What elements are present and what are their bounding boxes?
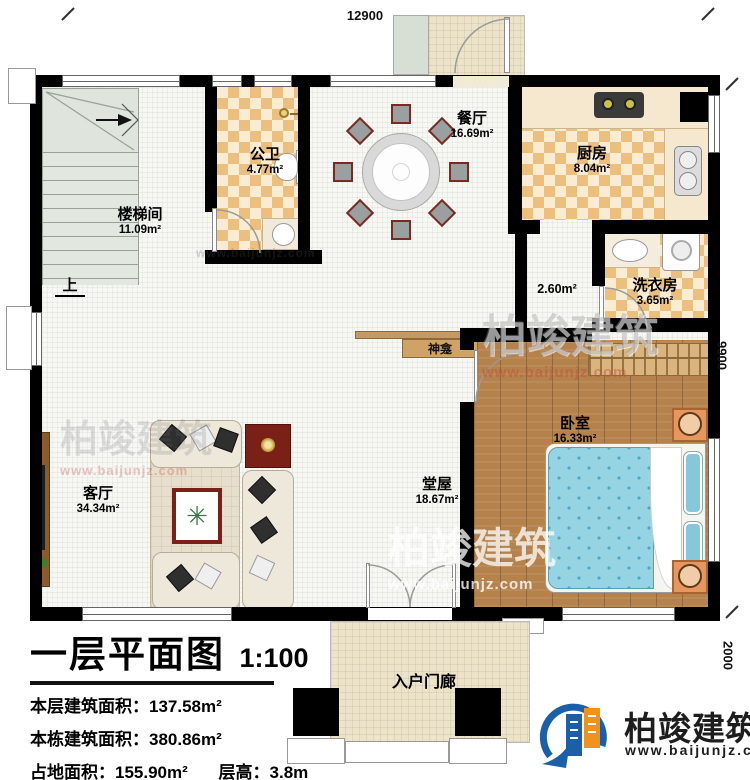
dining-chair-e: [449, 162, 469, 182]
stat-floor-area: 本层建筑面积：137.58m²: [30, 692, 309, 717]
page-title: 一层平面图: [30, 634, 225, 675]
porch-column-right: [455, 688, 501, 736]
floor-plan: ✳ 神龛: [0, 0, 750, 780]
window-top-dining-1: [254, 75, 292, 87]
coffee-table-plant: ✳: [183, 502, 211, 530]
title-underline: [30, 681, 274, 685]
laundry-basin: [612, 239, 648, 262]
wall-bedroom-left-2: [460, 402, 474, 614]
bath-door-leaf: [212, 208, 217, 252]
window-sill-left: [6, 306, 32, 370]
dimension-top: 12900: [330, 8, 400, 23]
wall-corridor-left: [515, 234, 527, 330]
kitchen-sink-basin-1: [679, 151, 697, 169]
kitchen-sink-basin-2: [679, 172, 697, 190]
nightstand-lamp-top: [678, 412, 702, 436]
dimension-porch: 2000: [721, 634, 736, 678]
nightstand-lamp-bottom: [678, 564, 702, 588]
wall-bedroom-top: [460, 328, 592, 342]
patio-glass-panel: [393, 15, 429, 75]
wall-bedroom-left-1: [460, 328, 474, 350]
dimension-right: 9900: [715, 334, 730, 378]
bed-pillow-1: [684, 452, 702, 514]
wall-laundry-bottom: [592, 318, 720, 332]
towel-ring: [279, 108, 289, 118]
bedroom-door-leaf: [474, 350, 478, 402]
corner-table-lamp: [261, 438, 275, 452]
window-bottom-bedroom: [562, 607, 675, 621]
bed-quilt: [548, 447, 654, 589]
washing-machine-drum: [671, 240, 692, 261]
brand-url: www.baijunjz.com: [625, 742, 750, 758]
bedroom-closet: [588, 343, 710, 376]
stove-burner-left: [602, 98, 614, 110]
pier-outline-topleft: [8, 68, 36, 104]
dining-chair-n: [391, 104, 411, 124]
window-right-bedroom: [708, 438, 720, 562]
dining-chair-w: [333, 162, 353, 182]
laundry-door-leaf: [599, 286, 604, 330]
porch-step: [345, 741, 449, 763]
wall-bath-right: [298, 87, 310, 264]
window-right-kitchen: [708, 95, 720, 153]
stair-landing: [42, 88, 139, 154]
shrine-label: 神龛: [428, 342, 452, 356]
wall-laundry-left: [592, 234, 605, 286]
plan-scale: 1:100: [239, 643, 308, 673]
wall-kitchen-bottom-1: [508, 220, 540, 234]
entrance-door-leaf-left: [366, 563, 370, 608]
entrance-door-leaf-right: [452, 563, 456, 608]
wall-bath-left: [205, 87, 217, 212]
stove-burner-right: [624, 98, 636, 110]
wall-kitchen-bottom-2: [592, 220, 720, 234]
window-bottom-living: [82, 607, 232, 621]
brand-block: 柏竣建筑 www.baijunjz.com: [536, 698, 746, 774]
brand-logo-icon: [536, 698, 620, 774]
stat-land-area: 占地面积：155.90m² 层高：3.8m: [30, 758, 309, 780]
title-block: 一层平面图 1:100 本层建筑面积：137.58m² 本栋建筑面积：380.8…: [30, 624, 309, 780]
wall-kitchen-left: [508, 87, 522, 234]
window-top-stairwell: [62, 75, 180, 87]
back-door-leaf: [504, 17, 510, 73]
bath-washbasin: [272, 223, 295, 246]
window-top-dining-2: [330, 75, 436, 87]
dining-table-center: [392, 163, 410, 181]
kitchen-flue: [680, 92, 708, 122]
back-door-opening: [453, 76, 509, 87]
window-top-bath: [212, 75, 242, 87]
entrance-opening: [368, 608, 452, 620]
stair-steps: [42, 152, 139, 285]
porch-column-base-right: [449, 738, 507, 764]
stat-building-area: 本栋建筑面积：380.86m²: [30, 725, 309, 750]
toilet-bowl: [274, 153, 298, 181]
dining-chair-s: [391, 220, 411, 240]
